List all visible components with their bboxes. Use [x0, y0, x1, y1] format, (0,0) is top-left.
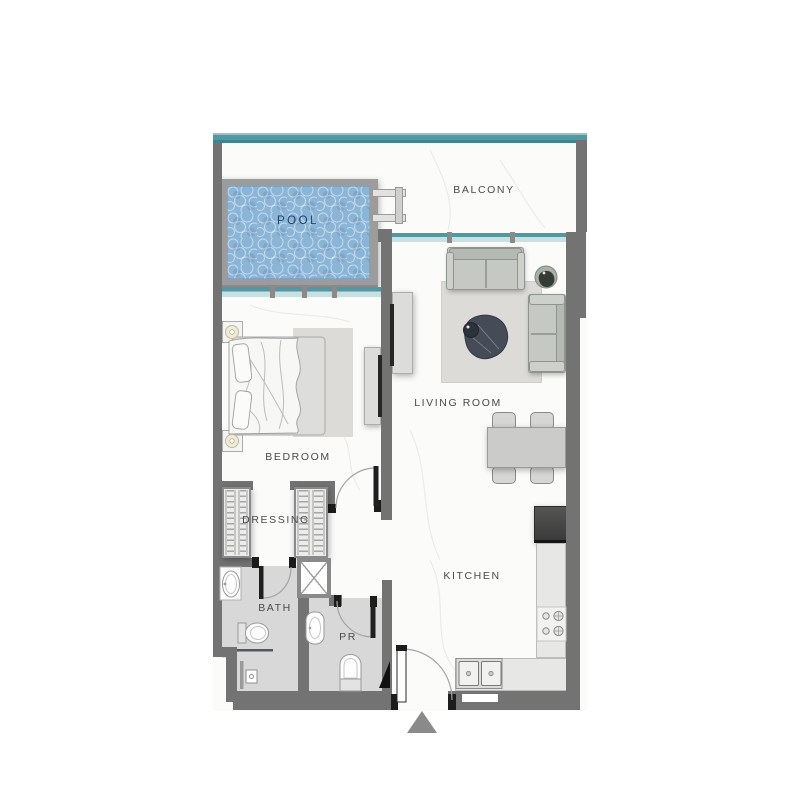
- wall-bath-pr: [298, 598, 309, 691]
- sofa-right-arm-top: [529, 294, 565, 305]
- dining-table: [487, 427, 566, 468]
- entry-door-jamb: [391, 694, 398, 710]
- room-label-dressing: DRESSING: [242, 514, 310, 526]
- wall-left: [213, 143, 222, 652]
- wall-hallway-kitchen: [382, 580, 392, 691]
- wall-bottom-inset: [462, 694, 498, 702]
- bedroom-door-jamb: [374, 500, 381, 512]
- nightstand-top: [222, 321, 243, 343]
- bath-door-jamb: [252, 557, 259, 568]
- wall-right-lower: [566, 318, 580, 710]
- room-label-kitchen: KITCHEN: [443, 570, 500, 582]
- pr-floor: [309, 598, 382, 692]
- nightstand-bottom: [222, 430, 243, 452]
- living-rug: [441, 281, 542, 383]
- sofa-top-back: [449, 248, 522, 260]
- room-label-living: LIVING ROOM: [414, 397, 502, 409]
- sofa-right-cushion-split: [531, 333, 557, 335]
- bedroom-tv: [378, 355, 382, 417]
- pr-door-jamb: [370, 596, 377, 607]
- entrance-marker: [407, 711, 437, 733]
- balcony-glass-rail: [213, 133, 587, 143]
- wall-right-balcony: [576, 140, 587, 232]
- sofa-top-arm-right: [517, 252, 525, 290]
- bath-door-jamb: [289, 557, 296, 568]
- dining-chair: [530, 466, 554, 484]
- room-label-bedroom: BEDROOM: [265, 451, 330, 463]
- living-window: [391, 233, 566, 242]
- living-tv: [390, 304, 394, 366]
- kitchen-counter-bottom: [455, 658, 568, 691]
- living-tv-console: [392, 292, 413, 374]
- wall-below-wardrobe: [219, 558, 252, 567]
- floor-plan: BALCONY POOL LIVING ROOM BEDROOM DRESSIN…: [0, 0, 800, 800]
- wardrobe-rail: [312, 490, 325, 555]
- pool: [219, 179, 378, 287]
- wall-bedroom-living: [381, 232, 392, 520]
- living-window-mullion: [510, 232, 515, 243]
- room-label-balcony: BALCONY: [453, 184, 514, 196]
- fridge: [534, 506, 568, 543]
- bath-shower-floor: [237, 650, 299, 692]
- living-window-mullion: [447, 232, 452, 243]
- bedroom-window-mullion: [332, 287, 337, 298]
- bedroom-door-jamb: [328, 504, 336, 513]
- sofa-right-arm-bottom: [529, 361, 565, 372]
- room-label-bath: BATH: [258, 602, 292, 614]
- dining-chair: [492, 466, 516, 484]
- shaft-closet: [297, 558, 331, 598]
- pool-ladder-bar: [395, 187, 403, 224]
- room-label-pool: POOL: [277, 215, 319, 227]
- pr-door-jamb: [334, 595, 341, 607]
- sofa-right-back: [556, 300, 565, 367]
- room-label-pr: PR: [339, 631, 357, 643]
- wardrobe-rail: [225, 490, 236, 555]
- sofa-top-cushion-split: [485, 260, 487, 288]
- entry-door-jamb: [448, 694, 456, 710]
- kitchen-counter-right: [536, 543, 566, 658]
- bedroom-window-mullion: [302, 287, 307, 298]
- wall-bottom-left: [233, 691, 392, 710]
- wall-right-living: [566, 232, 586, 318]
- pool-water: [227, 186, 370, 279]
- bedroom-rug: [293, 328, 353, 437]
- bedroom-window-mullion: [270, 287, 275, 298]
- sofa-top-arm-left: [446, 252, 454, 290]
